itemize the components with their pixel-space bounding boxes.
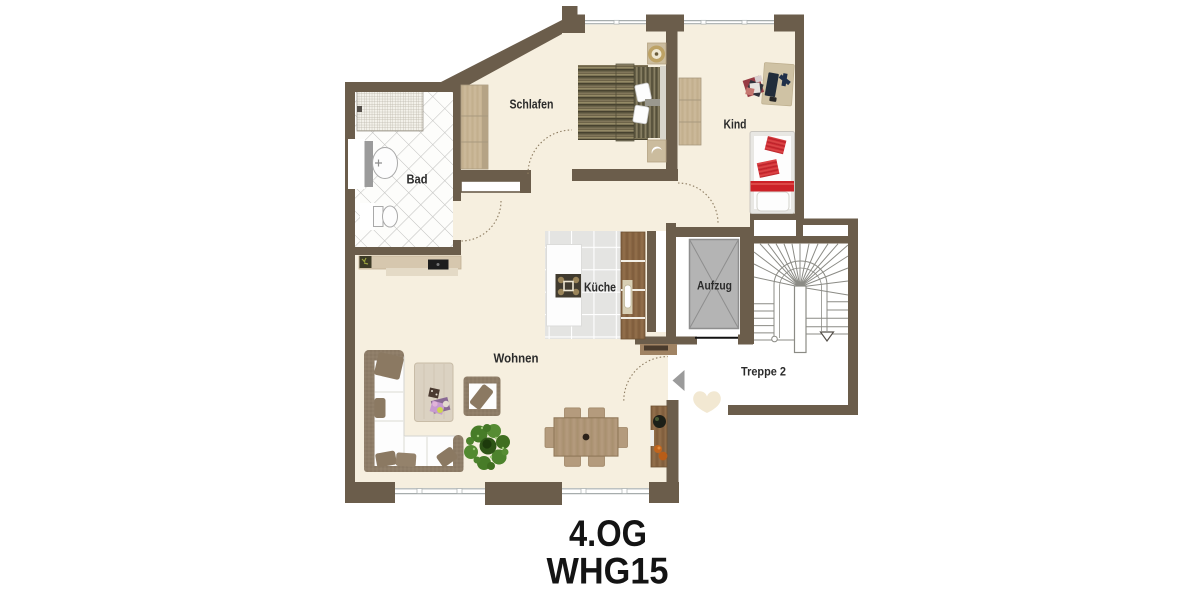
svg-text:Kind: Kind bbox=[724, 118, 747, 132]
svg-text:Bad: Bad bbox=[407, 173, 428, 187]
svg-text:4.OG: 4.OG bbox=[569, 513, 647, 554]
svg-text:Aufzug: Aufzug bbox=[697, 281, 732, 293]
svg-text:Treppe 2: Treppe 2 bbox=[741, 365, 786, 379]
svg-text:Schlafen: Schlafen bbox=[510, 98, 554, 112]
svg-text:Wohnen: Wohnen bbox=[494, 352, 539, 366]
svg-text:Küche: Küche bbox=[584, 281, 616, 295]
svg-text:WHG15: WHG15 bbox=[547, 551, 669, 592]
